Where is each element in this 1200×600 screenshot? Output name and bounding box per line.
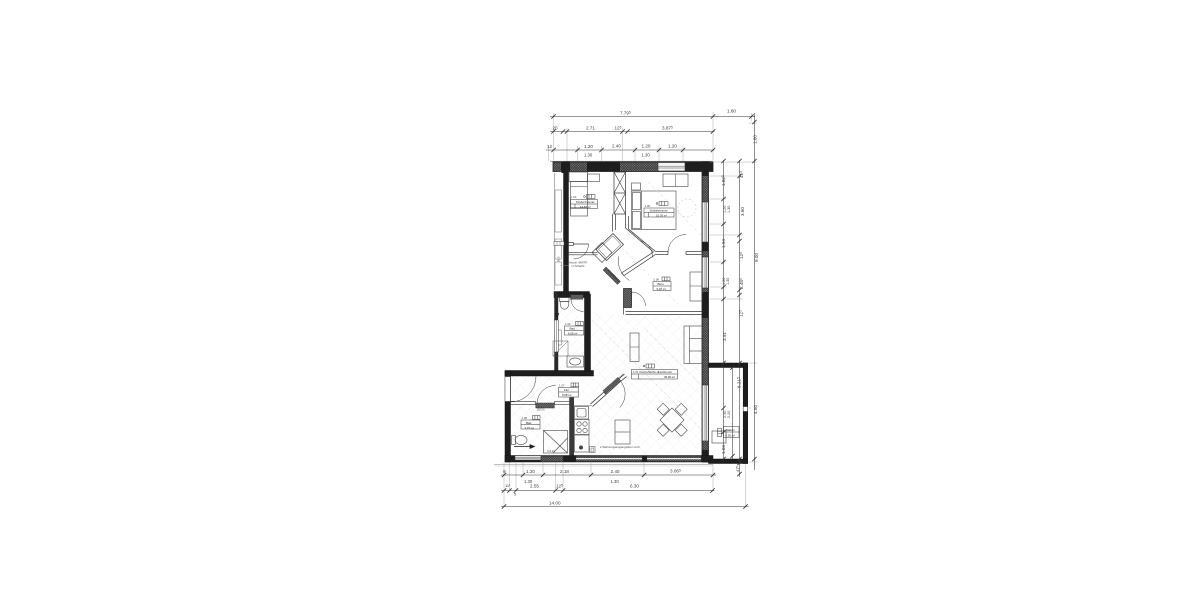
svg-text:h=2.01: h=2.01: [547, 450, 555, 453]
svg-text:3.91: 3.91: [722, 332, 727, 341]
svg-text:1.03: 1.03: [721, 445, 726, 454]
svg-text:1.20: 1.20: [526, 469, 535, 474]
svg-text:1.07: 1.07: [559, 384, 565, 388]
svg-text:36,5: 36,5: [557, 256, 561, 262]
svg-text:1.04: 1.04: [571, 195, 577, 199]
svg-text:2.40: 2.40: [612, 144, 621, 149]
svg-text:26/2.01: 26/2.01: [537, 410, 545, 412]
svg-text:Büro: Büro: [658, 282, 665, 286]
svg-text:1.30: 1.30: [584, 153, 593, 158]
svg-text:Schlafzimmer: Schlafzimmer: [650, 209, 668, 213]
svg-text:Bad: Bad: [526, 421, 532, 425]
svg-text:1.01: 1.01: [633, 370, 639, 374]
svg-text:9.00: 9.00: [754, 253, 759, 262]
svg-text:14.00: 14.00: [549, 501, 561, 506]
svg-text:1.30: 1.30: [642, 153, 651, 158]
svg-text:2.18: 2.18: [560, 469, 569, 474]
svg-text:4.50: 4.50: [753, 405, 758, 414]
svg-text:1.60: 1.60: [727, 109, 736, 114]
svg-text:6.09 m²: 6.09 m²: [568, 331, 578, 335]
svg-text:1.60: 1.60: [753, 135, 758, 144]
svg-text:13.57 m²: 13.57 m²: [580, 205, 591, 209]
svg-text:Anschl. WM/TR: Anschl. WM/TR: [569, 261, 587, 265]
svg-text:Bad: Bad: [570, 327, 576, 331]
svg-text:3.60: 3.60: [740, 207, 745, 216]
svg-text:9: 9: [503, 469, 506, 474]
svg-text:1.94: 1.94: [721, 239, 726, 248]
svg-text:2.40: 2.40: [611, 469, 620, 474]
svg-text:im Schacht: im Schacht: [572, 264, 585, 268]
svg-text:2.55: 2.55: [530, 484, 539, 489]
svg-text:15.36 m²: 15.36 m²: [656, 213, 667, 217]
svg-text:1.30: 1.30: [727, 206, 731, 213]
svg-text:11¹: 11¹: [505, 483, 511, 488]
svg-text:2.20: 2.20: [727, 411, 731, 418]
svg-text:1.30: 1.30: [611, 479, 620, 484]
svg-text:1.20: 1.20: [584, 144, 593, 149]
svg-text:Balkon: Balkon: [726, 428, 735, 432]
svg-text:1.20: 1.20: [668, 144, 677, 149]
svg-text:1.30: 1.30: [726, 278, 730, 285]
svg-text:1.02: 1.02: [565, 322, 571, 326]
svg-text:1.05: 1.05: [645, 204, 651, 208]
svg-text:1.20: 1.20: [642, 144, 651, 149]
svg-text:1.08: 1.08: [522, 416, 528, 420]
svg-text:Flur: Flur: [564, 388, 569, 392]
svg-text:2.71: 2.71: [586, 126, 595, 131]
svg-text:20: 20: [553, 126, 559, 131]
svg-text:39.96 m²: 39.96 m²: [664, 375, 675, 379]
svg-text:1.06: 1.06: [654, 278, 660, 282]
svg-text:Kinderzimmer: Kinderzimmer: [576, 200, 595, 204]
svg-text:6.50 m²: 6.50 m²: [726, 434, 736, 438]
svg-text:12: 12: [547, 144, 553, 149]
svg-text:6.30: 6.30: [630, 484, 639, 489]
svg-text:8.08 m²: 8.08 m²: [562, 393, 572, 397]
svg-text:2 Wohnungseingangstüren vorh.: 2 Wohnungseingangstüren vorh.: [600, 445, 641, 449]
svg-text:3.15 m²: 3.15 m²: [525, 426, 535, 430]
